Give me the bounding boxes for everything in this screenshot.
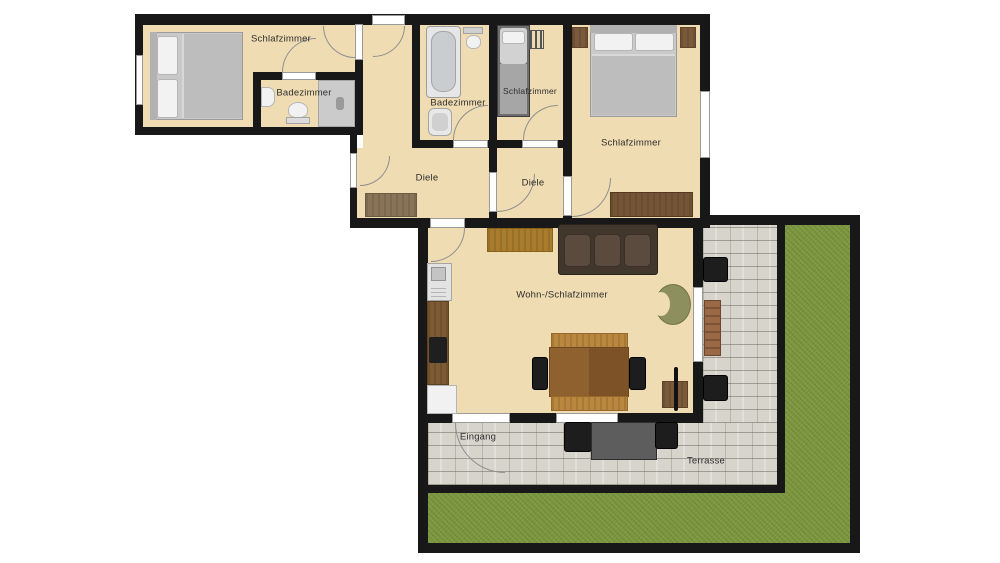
door-leaf <box>355 24 363 60</box>
terrace-lawn-divider <box>418 485 785 493</box>
cooktop <box>429 337 447 363</box>
terrace-table <box>591 422 657 460</box>
dining-table <box>549 347 629 397</box>
room-label-bedroom-right: Schlafzimmer <box>601 138 661 149</box>
terrace-lawn-divider <box>777 225 785 493</box>
terrace-chair <box>564 422 592 452</box>
toilet <box>288 102 308 118</box>
kitchen-sink <box>431 267 446 281</box>
lawn <box>428 493 785 543</box>
room-label-entrance: Eingang <box>460 432 496 443</box>
plot-border-bottom <box>418 543 860 553</box>
chair <box>629 357 646 390</box>
room-label-bathroom-left: Badezimmer <box>276 88 331 99</box>
plot-border-top <box>700 215 860 225</box>
window <box>693 287 703 362</box>
hall-cabinet <box>365 193 417 217</box>
nightstand <box>680 27 696 48</box>
sofa-cushion <box>624 234 651 267</box>
dresser <box>610 192 693 217</box>
ladder <box>529 30 544 49</box>
window <box>350 153 357 188</box>
terrace-chair <box>703 375 728 401</box>
blanket <box>592 54 675 115</box>
nightstand <box>572 27 588 48</box>
door-leaf <box>282 72 316 80</box>
sofa-cushion <box>594 234 621 267</box>
armchair-seat <box>652 292 670 316</box>
toilet <box>466 35 481 49</box>
pillow <box>157 36 178 75</box>
pillow <box>502 31 525 44</box>
wall <box>412 14 420 148</box>
sink-basin <box>432 113 448 131</box>
terrace-chair <box>655 422 678 449</box>
shower-fixture <box>336 97 344 110</box>
window <box>700 91 710 158</box>
door-leaf <box>489 172 497 212</box>
door-leaf <box>453 140 488 148</box>
sink-drainer <box>431 285 446 297</box>
bathtub-basin <box>431 31 456 92</box>
toilet-tank <box>463 27 483 34</box>
terrace-chair <box>703 257 728 282</box>
sideboard-desk <box>487 228 553 252</box>
window <box>136 55 143 105</box>
room-label-bathroom-mid: Badezimmer <box>430 98 485 109</box>
room-label-hall-left: Diele <box>416 173 439 184</box>
chair <box>532 357 548 390</box>
room-label-living-room: Wohn-/Schlafzimmer <box>516 290 608 301</box>
fridge <box>427 385 457 414</box>
door-leaf <box>563 176 572 216</box>
dining-bench <box>551 396 628 411</box>
headboard <box>150 32 157 120</box>
entrance-door-leaf <box>452 413 510 423</box>
room-label-hall-right: Diele <box>522 178 545 189</box>
door-leaf <box>430 218 465 228</box>
dining-bench <box>551 333 628 348</box>
sink <box>261 87 275 107</box>
room-label-bedroom-small: Schlafzimmer <box>503 86 557 96</box>
pillow <box>157 79 178 118</box>
blanket <box>182 34 242 118</box>
pillow <box>594 33 633 51</box>
desk-chair <box>674 367 678 411</box>
room-label-bedroom-left: Schlafzimmer <box>251 34 311 45</box>
room-label-terrace: Terrasse <box>687 456 725 467</box>
headboard <box>590 25 677 33</box>
wall <box>135 14 710 25</box>
floor-plan: Schlafzimmer Badezimmer Badezimmer Schla… <box>0 0 1000 563</box>
pillow <box>635 33 674 51</box>
plot-border-right <box>850 215 860 553</box>
sofa-cushion <box>564 234 591 267</box>
toilet-tank <box>286 117 310 124</box>
terrace-bench <box>704 300 721 356</box>
door-leaf <box>522 140 558 148</box>
lawn <box>785 225 850 543</box>
door-leaf <box>372 15 405 25</box>
